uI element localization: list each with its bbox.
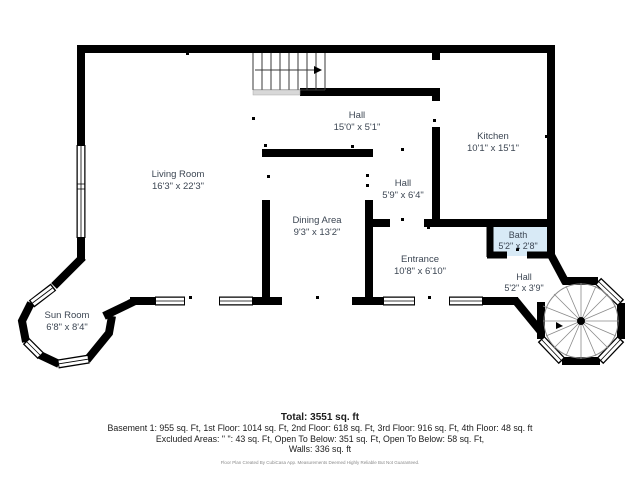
bath-room-fill [490, 223, 552, 256]
interior-walls [262, 45, 553, 303]
total-area-text: Total: 3551 sq. ft [0, 412, 640, 423]
window [32, 287, 54, 304]
window [26, 341, 41, 356]
stair-direction-arrow-icon [314, 66, 322, 74]
window [78, 145, 85, 238]
area-summary: Total: 3551 sq. ft Basement 1: 955 sq. F… [0, 412, 640, 467]
walls-area-text: Walls: 336 sq. ft [0, 444, 640, 455]
stair-landing-edge [253, 90, 300, 95]
window [541, 339, 562, 361]
floor-areas-text: Basement 1: 955 sq. Ft, 1st Floor: 1014 … [0, 423, 640, 434]
floor-plan-drawing [0, 0, 640, 480]
floor-plan-page: Hall 15'0" x 5'1" Kitchen 10'1" x 15'1" … [0, 0, 640, 480]
window [600, 339, 621, 361]
window [58, 359, 89, 364]
disclaimer-text: Floor Plan Created By CubiCasa App. Meas… [0, 458, 640, 467]
window [598, 281, 621, 303]
spiral-staircase-icon [543, 283, 619, 359]
excluded-areas-text: Excluded Areas: " ": 43 sq. Ft, Open To … [0, 434, 640, 445]
spiral-direction-arrow-icon [556, 322, 563, 329]
